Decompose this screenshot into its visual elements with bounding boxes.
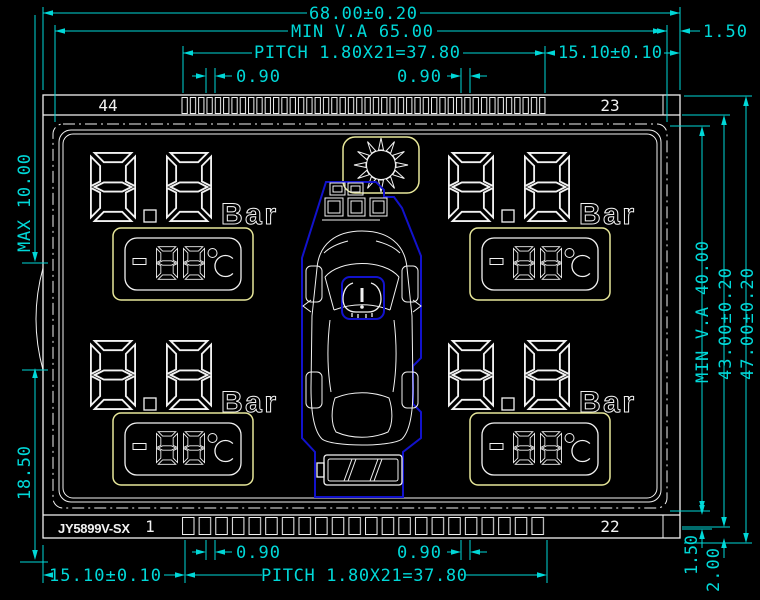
- wheel-rear-right: [402, 372, 418, 408]
- dim-margin-inner-bottom: 1.50: [682, 535, 702, 575]
- dim-pin-pitch-top: PITCH 1.80X21=37.80: [254, 43, 460, 63]
- pressure-digits: [91, 153, 211, 222]
- mode-squares-icon: [322, 183, 387, 220]
- dim-overall-width: 68.00±0.20: [309, 4, 417, 24]
- dim-pin-width-bottom-right: 0.90: [397, 543, 441, 563]
- dim-tab-offset: 18.50: [15, 446, 35, 500]
- decimal-point: [144, 210, 156, 222]
- temperature-box: [113, 413, 253, 485]
- quadrant-top-right: Bar: [449, 153, 635, 300]
- decimal-point: [144, 398, 156, 410]
- left-edge-tab-arc: [36, 268, 43, 370]
- dim-pin-pitch-bottom: PITCH 1.80X21=37.80: [261, 566, 467, 586]
- pin-number-bottom-left: 1: [145, 517, 155, 536]
- dim-pin-width-top-left: 0.90: [236, 67, 280, 87]
- pressure-digits: [449, 153, 569, 222]
- glass-outline: [43, 95, 680, 538]
- part-number: JY5899V-SX: [58, 521, 130, 536]
- lcd-technical-drawing: 44 23 JY5899V-SX 1 22 Bar Bar: [0, 0, 760, 600]
- dim-min-viewing-width: MIN V.A 65.00: [291, 22, 433, 42]
- dim-overall-height: 47.00±0.20: [738, 268, 758, 380]
- pin-comb-bottom: [181, 517, 547, 535]
- wheel-rear-left: [306, 372, 322, 408]
- dim-right-margin-top: 1.50: [703, 22, 747, 42]
- center-column: [302, 137, 421, 497]
- pressure-digits: [449, 341, 569, 410]
- dimension-annotations: 68.00±0.20 MIN V.A 65.00 1.50 PITCH 1.80…: [15, 4, 758, 592]
- car-top-view-icon: [303, 231, 421, 445]
- tpms-warning-icon: [342, 277, 384, 319]
- quadrant-bottom-left: Bar: [91, 341, 277, 485]
- pin-comb-top: [181, 97, 547, 114]
- pin-number-top-left: 44: [98, 96, 117, 115]
- pressure-unit-label: Bar: [221, 198, 277, 231]
- sun-icon: [354, 138, 408, 192]
- battery-icon: [317, 455, 402, 485]
- dim-max-offset: MAX 10.00: [15, 154, 35, 252]
- temperature-box: [470, 228, 610, 300]
- dim-glass-height: 43.00±0.20: [716, 268, 736, 380]
- dim-pin-width-bottom-left: 0.90: [236, 543, 280, 563]
- decimal-point: [502, 210, 514, 222]
- temperature-box: [113, 228, 253, 300]
- quadrant-top-left: Bar: [91, 153, 277, 300]
- temperature-box: [470, 413, 610, 485]
- pressure-unit-label: Bar: [579, 198, 635, 231]
- pin-number-bottom-right: 22: [600, 517, 619, 536]
- dim-pin-edge-offset-top: 15.10±0.10: [558, 43, 662, 63]
- dim-margin-outer-bottom: 2.00: [704, 548, 724, 592]
- quadrant-bottom-right: Bar: [449, 341, 635, 485]
- pin-number-top-right: 23: [600, 96, 619, 115]
- decimal-point: [502, 398, 514, 410]
- dim-pin-width-top-right: 0.90: [397, 67, 441, 87]
- dim-pin-edge-offset-bottom: 15.10±0.10: [49, 566, 161, 586]
- pressure-digits: [91, 341, 211, 410]
- center-highlight-polygon: [302, 182, 421, 497]
- dim-min-viewing-height: MIN V.A 40.00: [693, 241, 713, 383]
